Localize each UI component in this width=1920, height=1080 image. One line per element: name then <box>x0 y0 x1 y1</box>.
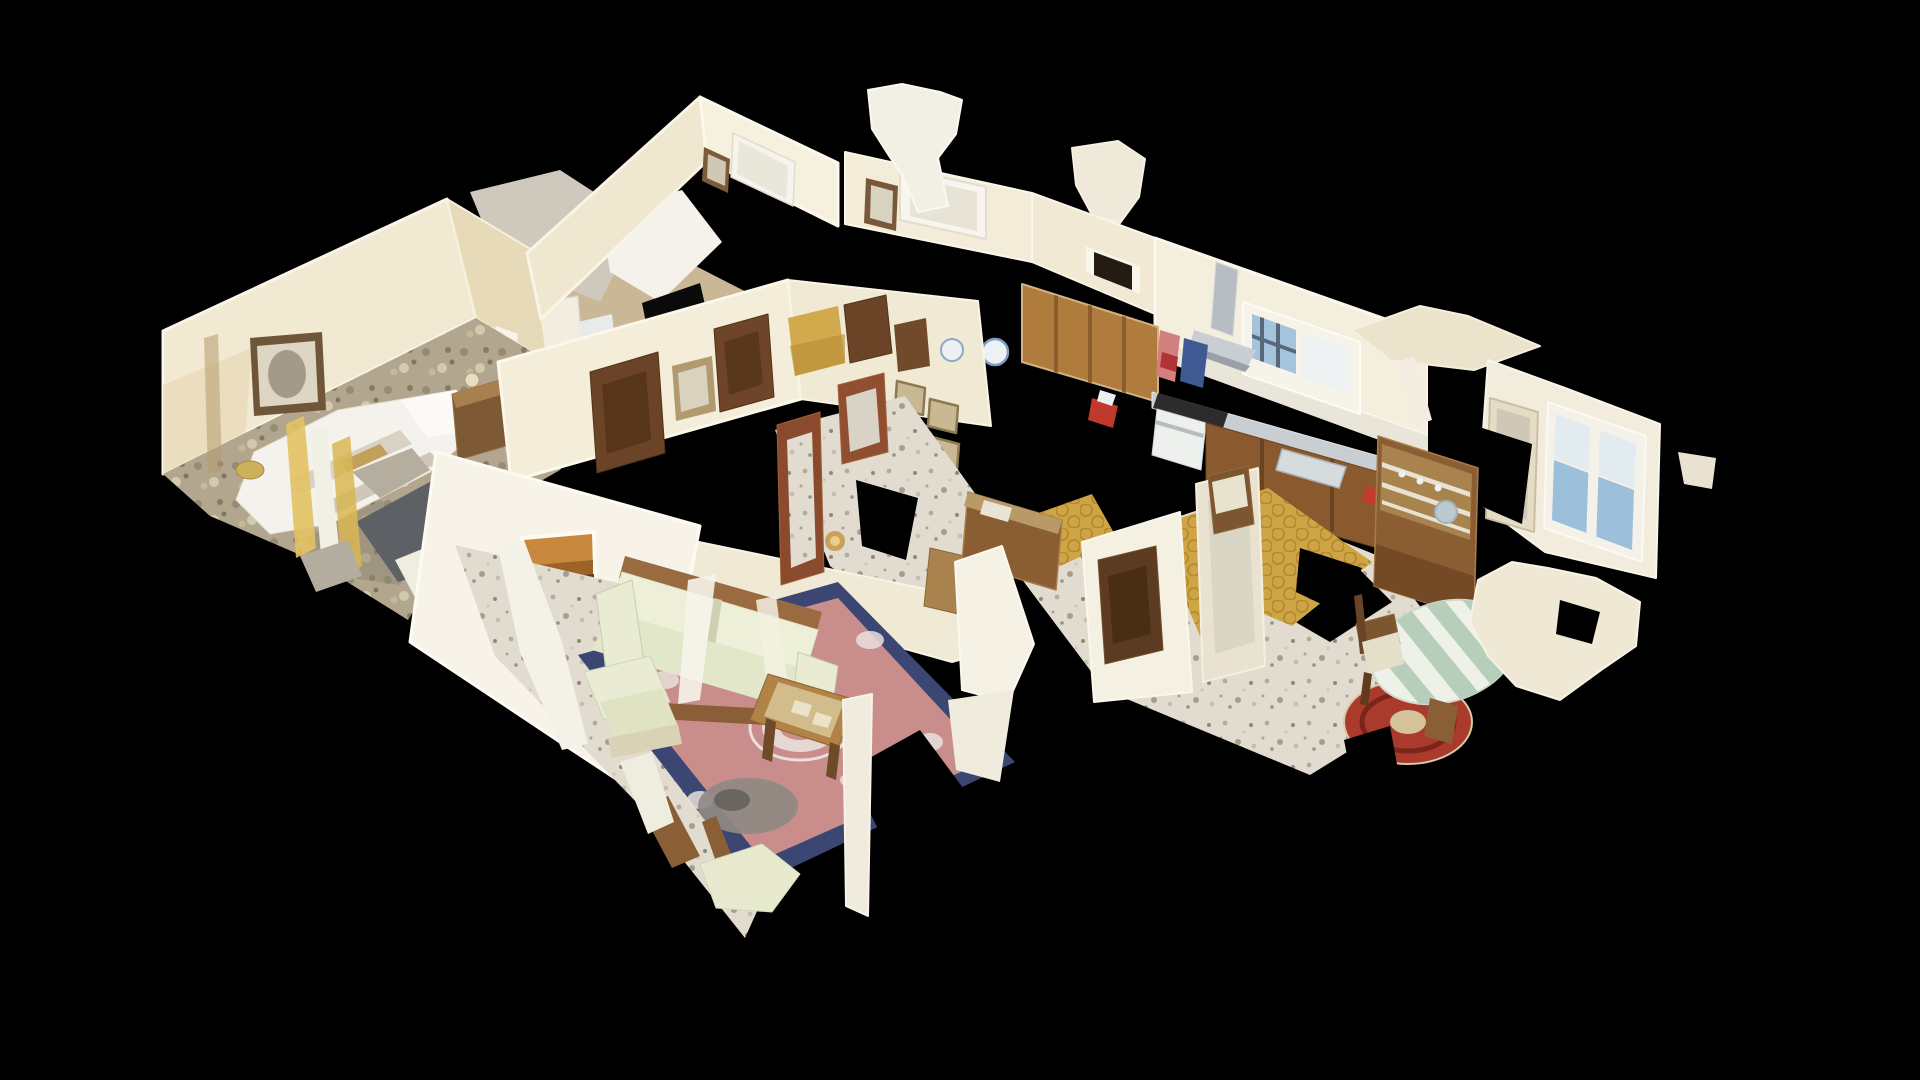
hall-plate-blue <box>941 339 963 361</box>
hood-chimney <box>1211 262 1238 336</box>
standing-doorframe-1-inner <box>787 432 816 568</box>
hutch-dish-2 <box>1417 478 1424 485</box>
tall-wall-strip <box>843 694 872 916</box>
hutch-dish-3 <box>1435 485 1442 492</box>
dining-dark-door-panel <box>1108 566 1151 644</box>
towel-blue <box>1180 338 1208 388</box>
fallen-chandelier-inner <box>830 536 840 546</box>
table-pedestal <box>1424 698 1458 744</box>
standing-doorframe-2-inner <box>846 388 880 452</box>
hall-door-2-panel <box>724 331 763 395</box>
hall-picture-c <box>928 399 958 433</box>
wall-clock-plate <box>982 339 1008 365</box>
rug-motif-2 <box>856 631 884 649</box>
hall-door-3 <box>844 295 892 363</box>
dollhouse-3d-view[interactable] <box>0 0 1920 1080</box>
hall-door-4 <box>894 318 930 372</box>
hall-door-1-panel <box>602 371 651 454</box>
cabinet-line-3 <box>1122 316 1126 393</box>
rug-blur-core <box>714 789 750 811</box>
hall-picture-inner <box>870 185 893 224</box>
hutch-plate <box>1435 501 1457 523</box>
hall-mirror-glass <box>678 365 709 412</box>
bedside-lamp <box>465 373 479 387</box>
bedroom1-picture-motif <box>268 350 306 398</box>
hutch-dish-1 <box>1399 471 1406 478</box>
cabinet-line-2 <box>1088 305 1092 383</box>
viewer-root <box>0 0 1920 1080</box>
cabinet-line-1 <box>1054 295 1058 373</box>
red-round-rug-center <box>1390 710 1426 734</box>
bedroom1-basket <box>236 461 264 479</box>
